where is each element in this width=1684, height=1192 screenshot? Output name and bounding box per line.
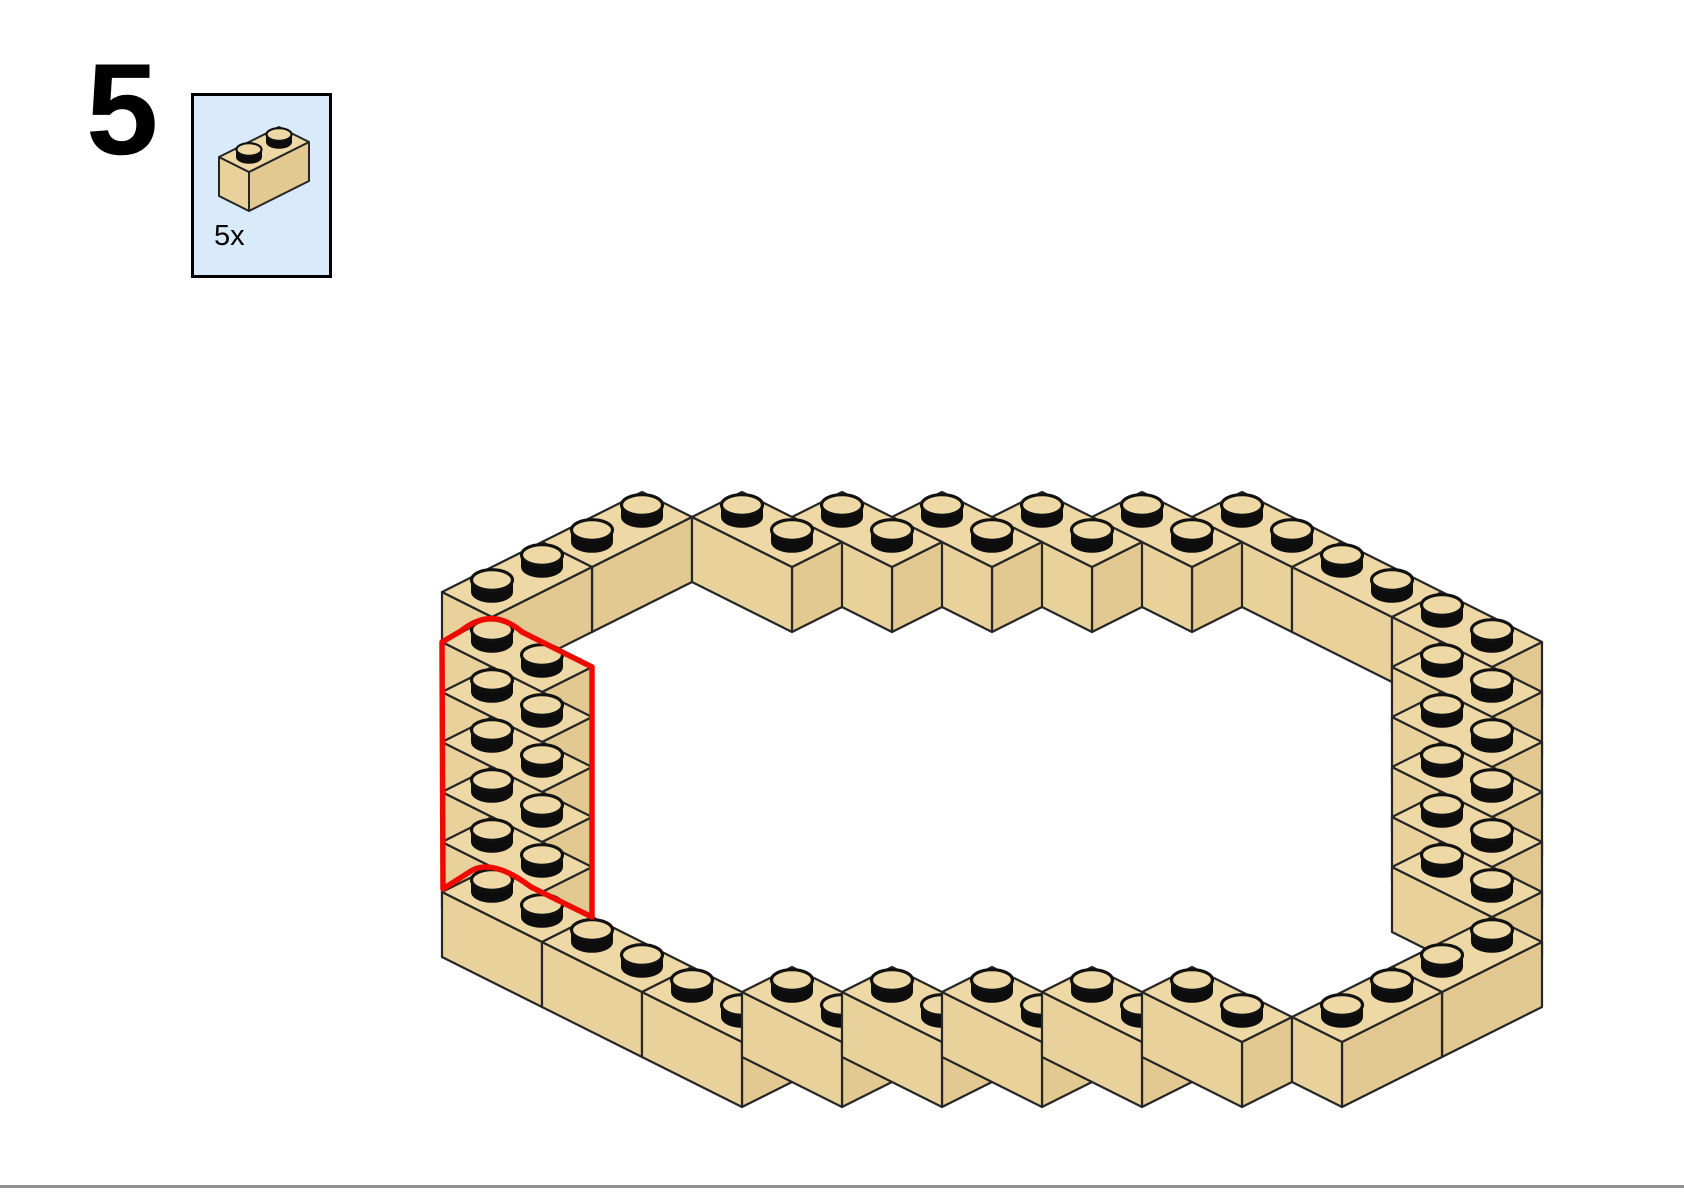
footer-rule: [0, 1185, 1684, 1188]
assembly-illustration: [0, 0, 1684, 1192]
brick-BR1: [1292, 967, 1442, 1107]
instruction-page: 5 5x: [0, 0, 1684, 1192]
